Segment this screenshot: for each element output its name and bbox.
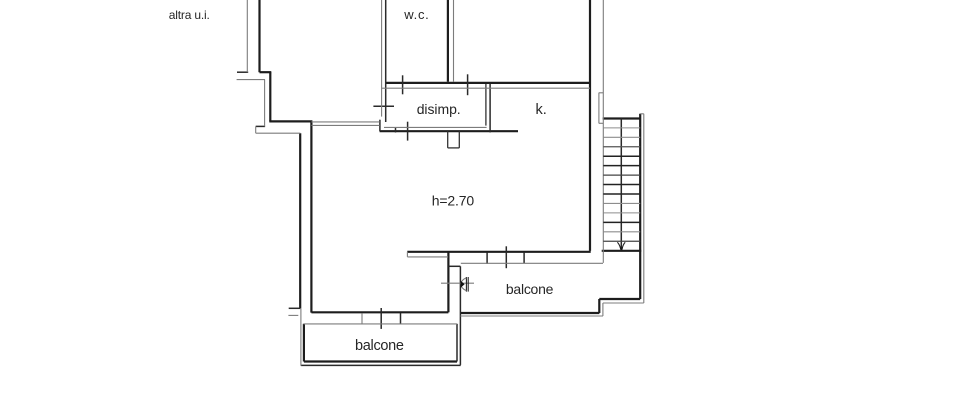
- svg-text:altra u.i.: altra u.i.: [169, 8, 210, 22]
- svg-text:h=2.70: h=2.70: [432, 192, 475, 208]
- svg-text:w.c.: w.c.: [403, 7, 429, 22]
- svg-text:balcone: balcone: [355, 338, 404, 354]
- svg-text:k.: k.: [536, 102, 547, 118]
- svg-text:disimp.: disimp.: [417, 101, 461, 117]
- svg-text:balcone: balcone: [506, 281, 554, 297]
